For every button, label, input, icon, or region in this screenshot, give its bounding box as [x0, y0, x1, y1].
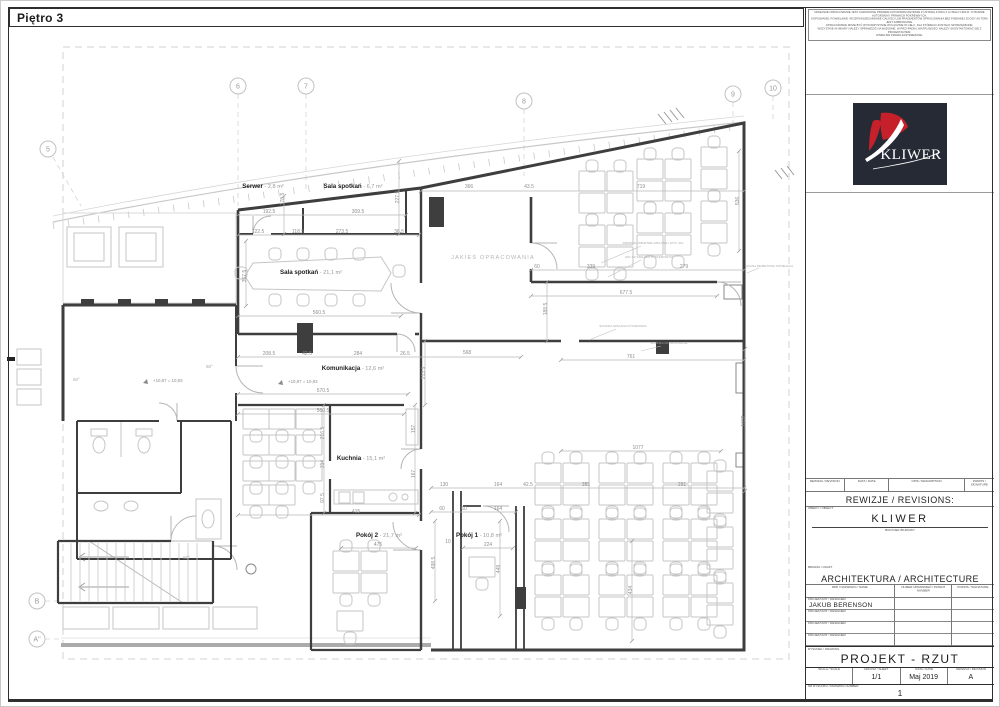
- chair: [570, 618, 582, 630]
- level-label: +10,87 = 10,93: [153, 378, 183, 383]
- desk: [333, 573, 359, 593]
- designer-name: JAKUB BERENSON: [809, 602, 872, 609]
- pilaster: [192, 299, 205, 305]
- chair: [672, 202, 684, 214]
- craft-row: PROJEKTANT / DESIGNER: [806, 610, 994, 622]
- chair: [606, 618, 618, 630]
- desk: [627, 597, 653, 617]
- annotation-leader: [747, 268, 759, 273]
- desk: [535, 541, 561, 561]
- facade-tick: [534, 152, 535, 159]
- facade-tick: [579, 146, 580, 153]
- dimension-label: 227.5: [395, 191, 401, 204]
- desk: [701, 201, 727, 221]
- dimension-label: 314: [320, 460, 326, 469]
- chair: [250, 456, 262, 468]
- door-arc: [717, 282, 741, 306]
- desk: [296, 461, 322, 481]
- facade-tick: [594, 144, 595, 151]
- facade-layer: [53, 108, 794, 229]
- desk: [637, 159, 663, 179]
- chair: [269, 294, 281, 306]
- facade-tick: [564, 148, 565, 155]
- drawing-number-value: 1: [806, 689, 994, 698]
- desk: [607, 193, 633, 213]
- craft-col-header: PODPIS / SIGNATURE: [952, 585, 994, 598]
- desk: [243, 435, 269, 455]
- dimension-label: 355: [582, 482, 591, 488]
- dimension-label: 97.5: [320, 493, 326, 503]
- grid-bubble-label: 7: [304, 83, 308, 90]
- desk: [663, 597, 689, 617]
- dimension-label: 130: [440, 482, 449, 488]
- chair: [340, 594, 352, 606]
- angle-label: 60°: [73, 377, 80, 382]
- desk: [663, 541, 689, 561]
- facade-tick: [98, 215, 99, 222]
- chair: [325, 294, 337, 306]
- desk: [579, 171, 605, 191]
- desk: [637, 235, 663, 255]
- chair: [303, 456, 315, 468]
- drawing-number-row: NR RYSUNKU / DRAWING NUMBER 1: [806, 685, 994, 700]
- revision-value: A: [948, 674, 994, 681]
- desk: [599, 541, 625, 561]
- grid-bubble-label: 5: [46, 146, 50, 153]
- dimension-label: 498.5: [431, 557, 437, 570]
- furniture-layer: [71, 136, 733, 644]
- shaft: [515, 587, 526, 609]
- desk: [469, 557, 495, 577]
- light-structure-layer: [17, 213, 744, 645]
- chair: [276, 482, 288, 494]
- desk: [535, 597, 561, 617]
- dimension-label: 208.5: [263, 351, 276, 357]
- facade-tick: [263, 192, 264, 199]
- desk: [701, 169, 727, 189]
- dimension-label: 366: [465, 184, 474, 190]
- annotation-note: HPL NA STELAŻU SYSTEMOWYM: [625, 254, 673, 259]
- dimension-label: 339: [587, 264, 596, 270]
- chair: [393, 265, 405, 277]
- dimension-label: 415: [352, 509, 361, 515]
- chair: [614, 160, 626, 172]
- wall: [531, 197, 717, 282]
- chair: [634, 618, 646, 630]
- dimension-label: 216.5: [320, 427, 326, 440]
- craft-row: PROJEKTANT / DESIGNER: [806, 622, 994, 634]
- dimension-label: 475: [374, 542, 383, 548]
- chair: [542, 452, 554, 464]
- exterior-wall: [238, 123, 744, 650]
- craft-divider: [951, 598, 952, 646]
- door-arc: [397, 334, 415, 352]
- desk: [563, 463, 589, 483]
- desk: [269, 435, 295, 455]
- chair: [708, 190, 720, 202]
- dimension-label: 42.5: [302, 351, 312, 357]
- column: [246, 564, 256, 574]
- grid-bubble-label: B: [35, 598, 40, 605]
- desk: [563, 575, 589, 595]
- chair: [708, 244, 720, 256]
- desk: [599, 519, 625, 539]
- desk: [707, 549, 733, 569]
- angle-label: 60°: [183, 555, 190, 560]
- chair: [708, 136, 720, 148]
- dimension-label: 178.5: [280, 193, 286, 206]
- door-arc: [159, 403, 177, 421]
- grid-bubble: 9: [725, 86, 741, 102]
- chair: [644, 202, 656, 214]
- object-name: KLIWER: [806, 513, 994, 525]
- desk: [691, 463, 717, 483]
- chair: [586, 160, 598, 172]
- drawing-sheet: 5678910BA'': [0, 0, 1000, 707]
- dimension-label: 291: [678, 482, 687, 488]
- facade-tick: [233, 196, 234, 203]
- door-arc: [391, 283, 421, 313]
- craft-divider: [894, 598, 895, 646]
- chair: [250, 430, 262, 442]
- desk: [269, 461, 295, 481]
- desk: [627, 519, 653, 539]
- shaft: [297, 323, 313, 353]
- dimension-label: 284: [354, 351, 363, 357]
- chair: [542, 618, 554, 630]
- dimension-label: 192.5: [263, 209, 276, 215]
- facade-tick: [83, 218, 84, 225]
- desk: [691, 541, 717, 561]
- chair: [250, 482, 262, 494]
- grid-bubble-label: 9: [731, 91, 735, 98]
- door-arc: [171, 516, 196, 541]
- desk: [269, 485, 295, 505]
- divider: [806, 94, 994, 95]
- plan-boundary: [63, 47, 789, 659]
- dimension-label: 1077: [632, 445, 643, 451]
- balcony: [17, 349, 41, 405]
- desk: [361, 573, 387, 593]
- date-value: Maj 2019: [901, 674, 947, 681]
- desk: [599, 575, 625, 595]
- facade-tick: [383, 174, 384, 181]
- storage-cells: [63, 607, 257, 629]
- desk: [361, 551, 387, 571]
- annotation-note: ŚCIANKA SZKLANA SYSTEMOWA: [599, 323, 647, 328]
- desk: [665, 235, 691, 255]
- desk: [707, 493, 733, 513]
- facade-tick: [459, 163, 460, 170]
- room-label: Kuchnia - 15,1 m²: [337, 455, 385, 462]
- chair: [570, 452, 582, 464]
- dimension-label: 26.5: [400, 351, 410, 357]
- annotation-note: ŚCIANKA GK NA RUSZCIE: [650, 340, 687, 345]
- desk: [707, 605, 733, 625]
- pilaster: [118, 299, 131, 305]
- date-cell: DATA / DATEMaj 2019: [901, 668, 948, 684]
- chair: [644, 148, 656, 160]
- dimension-label: 570.5: [317, 388, 330, 394]
- dimension-label: 1032: [741, 415, 747, 426]
- drawing-number-label: NR RYSUNKU / DRAWING NUMBER: [808, 685, 859, 688]
- elevator: [67, 227, 111, 267]
- dimension-label: 188.5: [543, 303, 549, 316]
- craft-label: BRANŻA / CRAFT: [808, 566, 833, 569]
- drawing-meta-row: SKALA / SCALE ARKUSZ / SHEET1/1 DATA / D…: [806, 668, 994, 685]
- chair: [586, 214, 598, 226]
- dimension-label: 157: [411, 425, 417, 434]
- hall-wall: [63, 305, 236, 421]
- section-mark: [7, 357, 15, 361]
- dimension-label: 122.5: [252, 229, 265, 235]
- desk: [243, 409, 269, 429]
- chair: [276, 430, 288, 442]
- revisions-title: REWIZJE / REVISIONS:: [806, 492, 994, 507]
- facade-tick: [624, 139, 625, 146]
- desk: [269, 409, 295, 429]
- desk: [563, 597, 589, 617]
- wc-fixtures: [91, 422, 221, 539]
- desk: [691, 575, 717, 595]
- desk: [535, 575, 561, 595]
- facade-tick: [549, 150, 550, 157]
- kliwer-logo: KLIWER: [853, 103, 947, 185]
- revision-table-header: REWIZJA / REVISION DATA / DATE OPIS / DE…: [806, 478, 994, 492]
- revision-col-header: REWIZJA / REVISION: [806, 479, 845, 492]
- dimension-label: 60: [461, 506, 467, 512]
- desk: [627, 541, 653, 561]
- dimension-label: 560.5: [313, 310, 326, 316]
- room-label: Sala spotkań - 21,1 m²: [280, 269, 342, 276]
- object-label: OBIEKT / OBJECT: [808, 507, 833, 510]
- desk: [627, 463, 653, 483]
- facade-tick: [143, 209, 144, 216]
- chair: [276, 456, 288, 468]
- dimension-label: 224: [484, 542, 493, 548]
- desk: [563, 519, 589, 539]
- craft-row: PROJEKTANT / DESIGNERJAKUB BERENSON: [806, 598, 994, 610]
- desk: [701, 223, 727, 243]
- sheet-cell: ARKUSZ / SHEET1/1: [853, 668, 900, 684]
- divider: [806, 192, 994, 193]
- dimension-label: 449: [496, 565, 502, 574]
- chair: [672, 148, 684, 160]
- room-label: Pokój 1 - 10,8 m²: [456, 532, 502, 539]
- desk: [599, 597, 625, 617]
- desk: [701, 147, 727, 167]
- chair: [714, 460, 726, 472]
- grid-bubble: A'': [29, 631, 45, 647]
- desk: [579, 225, 605, 245]
- chair: [303, 430, 315, 442]
- annotation-leader: [589, 329, 616, 340]
- drawing-title: PROJEKT - RZUT: [806, 652, 994, 666]
- desk: [663, 575, 689, 595]
- desk: [337, 611, 363, 631]
- chair: [353, 294, 365, 306]
- facade-tick: [519, 155, 520, 162]
- level-arrow: [278, 380, 283, 385]
- zone-note: JAKIEŚ OPRACOWANIA: [451, 253, 535, 261]
- dimension-label: 213.5: [421, 367, 427, 380]
- level-arrow: [143, 379, 148, 384]
- radiator: [724, 285, 744, 467]
- desk: [243, 485, 269, 505]
- craft-col-header: IMIĘ I NAZWISKO / NAME: [806, 585, 895, 598]
- dimension-label: 434: [628, 586, 634, 595]
- dimension-label: 357.5: [242, 270, 248, 283]
- grid-bubble-label: 6: [236, 83, 240, 90]
- chair: [708, 190, 720, 202]
- dimension-label: 167: [411, 470, 417, 479]
- craft-row: PROJEKTANT / DESIGNER: [806, 634, 994, 646]
- dimension-label: 10: [445, 539, 451, 545]
- scale-cell: SKALA / SCALE: [806, 668, 853, 684]
- room-label: Sala spotkań - 6,7 m²: [324, 183, 383, 190]
- disclaimer-box: NINIEJSZE OPRACOWANIE JEST CHRONIONE PRA…: [808, 9, 991, 41]
- facade-tick: [113, 213, 114, 220]
- facade-tick: [248, 194, 249, 201]
- chair: [644, 202, 656, 214]
- angle-label: 60°: [206, 364, 213, 369]
- grid-bubble: 6: [230, 78, 246, 94]
- chair: [606, 452, 618, 464]
- door-arc: [236, 366, 263, 393]
- grid-bubble-label: A'': [33, 636, 40, 643]
- dimension-label: 273.5: [336, 229, 349, 235]
- annotation-note: ŚCIANA ŻELBETOWA ISTNIEJĄCA: [745, 263, 793, 268]
- grid-bubble-label: 10: [769, 85, 777, 92]
- object-rule: [812, 527, 988, 528]
- chair: [614, 214, 626, 226]
- revision-col-header: PODPIS / SIGNATURE: [965, 479, 994, 492]
- shaft: [429, 197, 444, 227]
- facade-tick: [68, 220, 69, 227]
- labels-layer: DRZWI ALUMINIOWE SZKLONE / WYS. 210HPL N…: [73, 183, 793, 560]
- door-arc: [401, 449, 421, 469]
- pilaster: [81, 299, 94, 305]
- chair: [476, 578, 488, 590]
- object-section: OBIEKT / OBJECT KLIWER BUDYNEK BIUROWY: [806, 507, 994, 545]
- dimension-label: 42.5: [523, 482, 533, 488]
- grid-bubble-label: 8: [522, 98, 526, 105]
- dimension-label: 719: [637, 184, 646, 190]
- revision-col-header: OPIS / DESCRIPTION: [889, 479, 965, 492]
- desk: [691, 519, 717, 539]
- facade-tick: [128, 211, 129, 218]
- drawing-title-box: RYSUNEK / DRAWING PROJEKT - RZUT: [806, 646, 994, 668]
- logo-cell: KLIWER: [806, 96, 994, 192]
- facade-tick: [218, 198, 219, 205]
- desk: [535, 463, 561, 483]
- chair: [714, 626, 726, 638]
- chair: [670, 618, 682, 630]
- facade-tick: [368, 176, 369, 183]
- grid-bubble: 7: [298, 78, 314, 94]
- chair: [634, 452, 646, 464]
- disclaimer-text: NINIEJSZE OPRACOWANIE JEST CHRONIONE PRA…: [811, 11, 988, 37]
- stairs: [58, 541, 213, 603]
- dimension-label: 677.5: [620, 290, 633, 296]
- dimension-label: 60: [439, 506, 445, 512]
- sheet-title-box: Piętro 3: [9, 8, 804, 27]
- craft-title: ARCHITEKTURA / ARCHITECTURE: [806, 572, 994, 585]
- facade-tick: [474, 161, 475, 168]
- disclaimer-line: WSZELKIE PRAWA ZASTRZEŻONE.: [811, 34, 988, 37]
- annotation-note: DRZWI ALUMINIOWE SZKLONE / WYS. 210: [623, 241, 684, 245]
- desk: [599, 463, 625, 483]
- dimension-label: 761: [627, 354, 636, 360]
- chair: [368, 594, 380, 606]
- facade-tick: [203, 200, 204, 207]
- title-block: NINIEJSZE OPRACOWANIE JEST CHRONIONE PRA…: [805, 8, 994, 702]
- dimension-label: 560.5: [317, 408, 330, 414]
- desk: [691, 597, 717, 617]
- desk: [637, 213, 663, 233]
- chair: [276, 506, 288, 518]
- chair: [698, 452, 710, 464]
- desk: [707, 583, 733, 603]
- wc-walls: [77, 421, 231, 559]
- dimension-label: 43.5: [524, 184, 534, 190]
- grid-line: [53, 157, 81, 206]
- dimension-label: 60: [534, 264, 540, 270]
- facade-tick: [489, 159, 490, 166]
- desk: [665, 159, 691, 179]
- room-label: Pokój 2 - 21,7 m²: [356, 532, 402, 539]
- hatch-mark: [658, 108, 794, 179]
- grid-bubble: 8: [516, 93, 532, 109]
- chair: [586, 214, 598, 226]
- drawing-label: RYSUNEK / DRAWING: [808, 648, 839, 651]
- pilaster: [155, 299, 168, 305]
- craft-col-headers: IMIĘ I NAZWISKO / NAME NUMER UPRAWNIEŃ /…: [806, 585, 994, 598]
- dimension-label: 536: [735, 197, 741, 206]
- desk: [243, 461, 269, 481]
- facade-tick: [504, 157, 505, 164]
- room-label: Komunikacja - 12,6 m²: [322, 365, 385, 372]
- facade-tick: [293, 187, 294, 194]
- desk: [333, 551, 359, 571]
- dimension-label: 164: [494, 482, 503, 488]
- revision-col-header: DATA / DATE: [845, 479, 890, 492]
- sheet-value: 1/1: [853, 674, 899, 681]
- annotation-leader: [608, 260, 641, 277]
- desk: [563, 541, 589, 561]
- chair: [297, 294, 309, 306]
- desk: [665, 213, 691, 233]
- level-label: +10,87 = 10,93: [288, 379, 318, 384]
- room-label: Serwer - 2,8 m²: [242, 183, 284, 190]
- desk: [663, 519, 689, 539]
- chair: [250, 506, 262, 518]
- elevator: [119, 227, 163, 267]
- desk: [663, 463, 689, 483]
- chair: [303, 482, 315, 494]
- object-subtitle: BUDYNEK BIUROWY: [806, 529, 994, 533]
- chair: [670, 452, 682, 464]
- chair: [297, 248, 309, 260]
- chair: [614, 214, 626, 226]
- craft-col-header: NUMER UPRAWNIEŃ / PATENT NUMBER: [895, 585, 953, 598]
- dimension-label: 279: [680, 264, 689, 270]
- sheet-title: Piętro 3: [10, 9, 803, 25]
- desk: [535, 519, 561, 539]
- double-wall: [453, 491, 524, 650]
- facade-tick: [173, 205, 174, 212]
- dimension-label: 309.5: [352, 209, 365, 215]
